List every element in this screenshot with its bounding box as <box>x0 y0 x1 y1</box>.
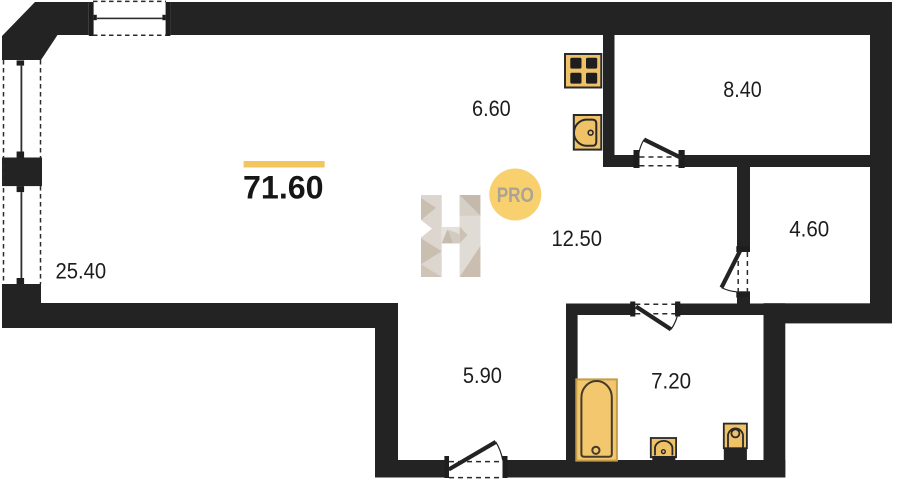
svg-text:5.90: 5.90 <box>463 363 502 388</box>
svg-text:71.60: 71.60 <box>243 170 324 206</box>
svg-text:7.20: 7.20 <box>651 368 691 393</box>
svg-text:25.40: 25.40 <box>55 259 106 284</box>
svg-text:6.60: 6.60 <box>472 96 511 121</box>
svg-text:8.40: 8.40 <box>723 77 761 102</box>
svg-text:4.60: 4.60 <box>789 217 829 242</box>
svg-text:PRO: PRO <box>497 184 534 207</box>
svg-text:12.50: 12.50 <box>551 226 602 251</box>
